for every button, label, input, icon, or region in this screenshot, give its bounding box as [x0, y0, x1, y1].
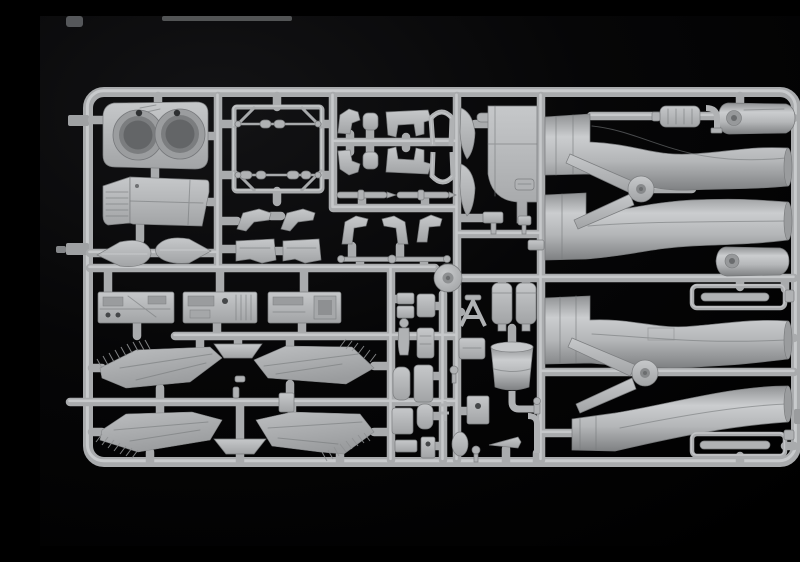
pilot-figure: [398, 319, 409, 356]
sprue-canvas: [40, 16, 800, 546]
parts-disc: [434, 264, 462, 292]
clamp-tab-left-upper: [68, 115, 89, 126]
console-panel-2: [183, 292, 257, 323]
console-panel-3: [268, 292, 341, 323]
exhaust-housing: [103, 102, 208, 169]
model-kit-sprue-photo: [40, 16, 800, 546]
spine-panel: [103, 177, 209, 226]
exhaust-locating-hole: [136, 110, 142, 116]
clamp-tab-left-lower: [66, 243, 89, 255]
intake-lip-upper: [718, 103, 795, 134]
clamp-tab-right: [794, 409, 800, 424]
console-panel-1: [98, 292, 174, 323]
clamp-tab-left-block: [56, 246, 66, 253]
exhaust-locating-hole: [174, 110, 180, 116]
intake-lip-lower: [716, 247, 789, 276]
actuator-block: [279, 393, 294, 412]
